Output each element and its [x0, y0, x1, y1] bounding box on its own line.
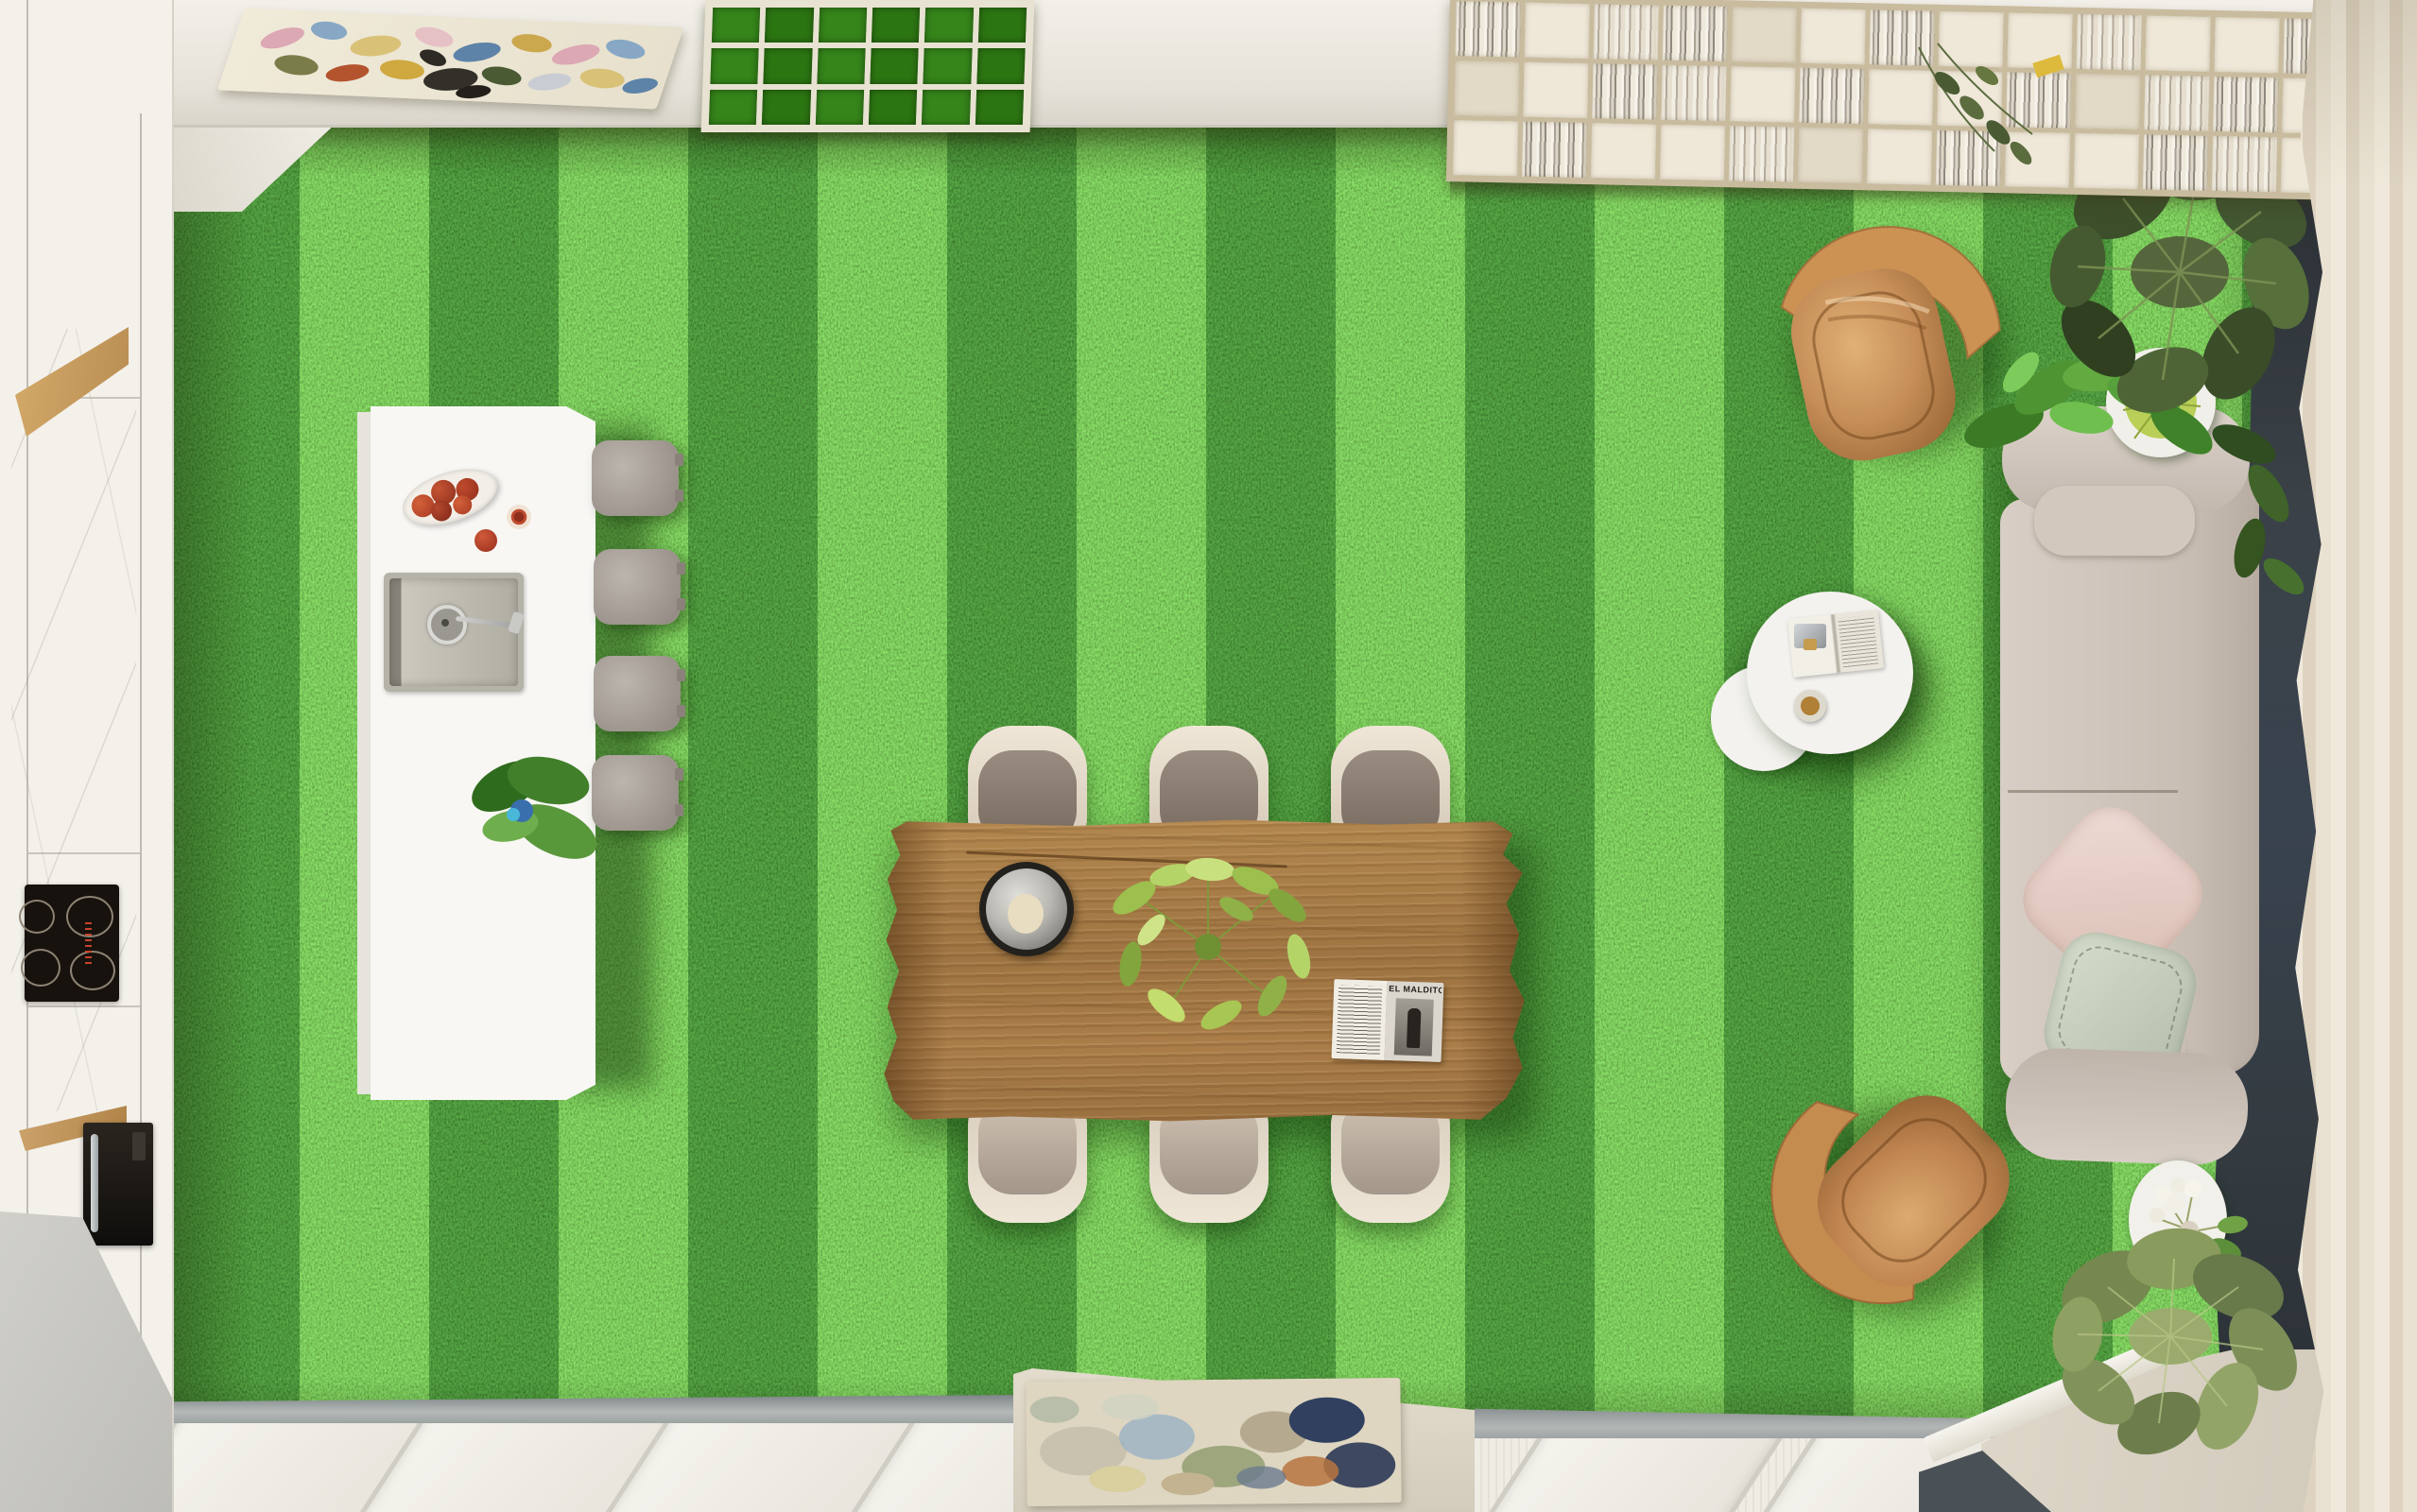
stool-foot [675, 768, 683, 781]
shelf-cell [2144, 75, 2209, 130]
shelf-cell [2074, 133, 2139, 189]
window-pane [817, 48, 866, 83]
oven-display [132, 1132, 146, 1160]
skylight-grid-window [701, 0, 1035, 132]
espresso-cup [1794, 690, 1826, 722]
book-page-lines [1838, 615, 1878, 668]
window-pane [765, 8, 814, 43]
window-pane [924, 48, 973, 83]
window-pane [976, 48, 1026, 83]
faucet [427, 605, 467, 644]
bar-stool [594, 656, 681, 731]
shelf-cell [2076, 14, 2141, 70]
magazine-text-lines [1337, 985, 1382, 1055]
burner-ring [19, 900, 55, 934]
stool-foot [675, 454, 683, 466]
shelf-cell [1661, 65, 1726, 121]
window-pane [872, 8, 921, 43]
bar-stool [594, 549, 681, 625]
sofa-headrest-cushion [2034, 486, 2195, 556]
window-pane [975, 90, 1024, 125]
bar-stool [592, 440, 679, 516]
window-pane [869, 90, 918, 125]
bar-stool [592, 755, 679, 831]
magazine: EL MALDITO [1332, 979, 1444, 1062]
shelf-cell [2075, 74, 2140, 129]
burner-ring [21, 949, 60, 987]
rug-pattern [1026, 1378, 1401, 1506]
induction-cooktop [25, 885, 119, 1002]
magazine-text-page [1332, 979, 1388, 1060]
shelf-cell [1732, 7, 1797, 62]
burner-ring [70, 951, 115, 990]
sliding-doors-left [170, 1423, 1026, 1512]
stool-foot [677, 705, 685, 717]
shelf-cell [2212, 136, 2277, 192]
shelf-cell [1801, 9, 1866, 64]
magazine-photo [1394, 998, 1434, 1056]
shelf-cell [1456, 1, 1521, 57]
magazine-cover-page: EL MALDITO [1385, 981, 1444, 1062]
shelf-cell [1454, 60, 1519, 116]
room-render: EL MALDITO [0, 0, 2417, 1512]
shelf-cell [1663, 6, 1728, 61]
oven-handle [91, 1134, 98, 1232]
window-pane [762, 90, 811, 125]
cup-coffee [1801, 696, 1820, 715]
shelf-cell [2213, 77, 2278, 132]
shelf-cell [1729, 126, 1794, 181]
island-monstera-plant [469, 752, 601, 866]
shelf-cell [2214, 17, 2279, 73]
cooktop-controls [85, 922, 92, 964]
shelf-cell [1594, 4, 1659, 60]
shelf-cell [1523, 62, 1588, 118]
magazine-figure [1407, 1008, 1421, 1048]
shelf-cell [1660, 125, 1725, 180]
stool-foot [677, 598, 685, 610]
faucet-hole [441, 619, 449, 627]
centerpiece-plant [1085, 843, 1331, 1041]
window-pane [819, 8, 868, 43]
shelf-cell [1799, 68, 1864, 124]
shelf-cell [1730, 66, 1795, 122]
shelf-cell [1525, 3, 1590, 59]
window-pane [710, 48, 759, 83]
stool-foot [675, 804, 683, 816]
stool-foot [677, 562, 685, 575]
tray-center [1008, 894, 1044, 934]
window-pane [712, 8, 761, 43]
hanging-shelf-plant [1881, 38, 2061, 180]
stool-foot [675, 490, 683, 502]
window-pane [978, 8, 1027, 43]
shelf-cell [1591, 123, 1656, 179]
shelf-cell [2143, 134, 2208, 190]
cut-pomegranate [507, 505, 531, 529]
window-pane [764, 48, 813, 83]
shelf-cell [1522, 122, 1587, 178]
shelf-cell [2145, 15, 2210, 71]
shelf-cell [1453, 120, 1518, 176]
built-in-oven [83, 1123, 153, 1246]
sofa-armrest-bottom [2004, 1047, 2250, 1167]
window-pane [922, 90, 971, 125]
shelf-cell [1592, 63, 1657, 119]
glass-panel [1475, 1438, 1801, 1512]
gold-accent [1804, 639, 1817, 650]
sofa-seat-seam [2008, 790, 2178, 793]
window-pane [815, 90, 864, 125]
shelf-cell [1798, 128, 1863, 183]
window-pane [870, 48, 919, 83]
magazine-title: EL MALDITO [1389, 984, 1442, 995]
window-pane [924, 8, 974, 43]
whole-pomegranate [475, 529, 497, 552]
fiddle-leaf-plant-bottom [2032, 1221, 2316, 1467]
stool-foot [677, 669, 685, 681]
metal-tray [979, 862, 1074, 956]
window-pane [709, 90, 758, 125]
abstract-rug [1026, 1378, 1401, 1506]
